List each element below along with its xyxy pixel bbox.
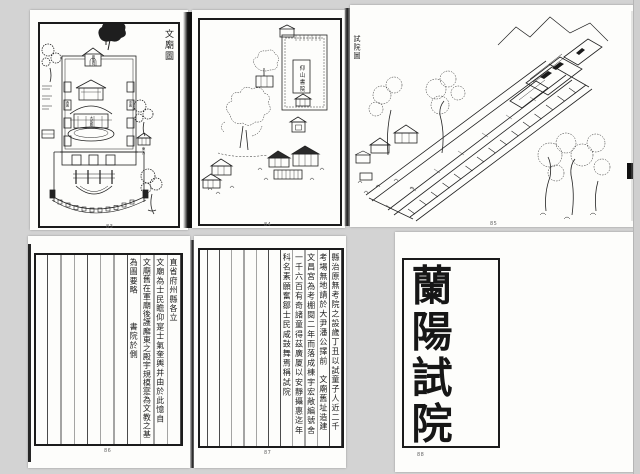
compound-wall-middle: [388, 75, 572, 215]
gate-hall: [62, 152, 136, 165]
left-tree: [42, 44, 54, 56]
main-hall-roof: [70, 106, 112, 114]
outer-wall: [62, 56, 136, 152]
text-column: 考場無地請於大尹潘公擇前 文廟舊址造建: [317, 253, 329, 443]
right-tree-trunk: [546, 157, 551, 211]
page-record-wenmiao-text: 直省府州縣各立 文廟為士民瞻仰寔士氣奎輿并由於此憶自 文廟舊在軍廟後護廨東之殿宇…: [28, 236, 190, 468]
page-confucian-temple-map: 崇聖祠 大成殿 西廡 東廡 東方 文廟圖 83: [30, 10, 188, 230]
west-wing-label: 西廡: [66, 101, 70, 108]
ruled-text-frame: 縣治原無考院之設歲丁丑以試童子人近二千 考場無地請於大尹潘公擇前 文廟舊址造建 …: [198, 248, 344, 448]
ruled-text-frame: 直省府州縣各立 文廟為士民瞻仰寔士氣奎輿并由於此憶自 文廟舊在軍廟後護廨東之殿宇…: [34, 253, 183, 446]
text-column: 為圖要略 書院於側: [127, 258, 140, 441]
page-seal-title: 蘭 陽 試 院 88: [395, 232, 640, 472]
page-number: 84: [264, 222, 271, 228]
page-number: 85: [490, 221, 497, 227]
marginal-label-block: [42, 86, 52, 109]
page-number: 88: [417, 452, 424, 458]
page-record-shiyuan-text: 縣治原無考院之設歲丁丑以試童子人近二千 考場無地請於大尹潘公擇前 文廟舊址造建 …: [194, 236, 346, 468]
text-columns: 縣治原無考院之設歲丁丑以試童子人近二千 考場無地請於大尹潘公擇前 文廟舊址造建 …: [280, 253, 341, 443]
potted-tree: [253, 50, 278, 71]
seal-character: 蘭: [407, 263, 457, 310]
seal-character: 試: [407, 355, 457, 402]
grove-foliage: [226, 87, 270, 125]
inner-hall-roof: [76, 80, 106, 88]
village-house: [268, 151, 290, 158]
east-wing-label: 東廡: [129, 100, 133, 108]
shrine-label: 崇聖祠: [91, 54, 95, 66]
page-title-shiyuan: 試院圖: [352, 35, 362, 61]
academy-frame: 仰山書院: [198, 18, 342, 226]
inner-hall: [295, 94, 311, 99]
academy-illustration: 仰山書院: [200, 20, 340, 224]
page-number: 83: [106, 224, 113, 230]
text-column: 文廟舊在軍廟後護廨東之殿宇規模寔為文教之基: [140, 258, 153, 441]
pavilion: [290, 117, 306, 122]
crenellated-screen-wall: [58, 200, 134, 212]
seal-script-column: 蘭 陽 試 院: [407, 263, 457, 447]
scan-right-margin: [633, 0, 640, 474]
village-house: [211, 159, 232, 166]
text-column: 縣治原無考院之設歲丁丑以試童子人近二千: [329, 253, 341, 443]
seal-title-frame: 蘭 陽 試 院: [402, 258, 500, 448]
seal-character: 院: [407, 401, 457, 448]
main-hall-label: 大成殿: [89, 115, 93, 127]
cell-rows: [386, 88, 576, 214]
page-number: 86: [104, 448, 111, 454]
corner-tree: [141, 169, 155, 183]
examination-hall-illustration: [350, 5, 640, 227]
academy-name-label: 仰山書院: [299, 64, 306, 93]
text-column: 文昌宮為考棚閱二年而落成棟宇宏敞編號舍: [304, 253, 316, 443]
text-columns: 直省府州縣各立 文廟為士民瞻仰寔士氣奎輿并由於此憶自 文廟舊在軍廟後護廨東之殿宇…: [127, 258, 180, 441]
temple-map-illustration: 崇聖祠 大成殿 西廡 東廡 東方: [40, 24, 178, 226]
text-column: 直省府州縣各立: [167, 258, 180, 441]
text-column: 一千六百有奇諸童得茲廣厦以安靜攝惠迄年: [292, 253, 304, 443]
page-academy-view: 仰山書院 84: [192, 10, 345, 228]
temple-map-frame: 崇聖祠 大成殿 西廡 東廡 東方 文廟圖: [38, 22, 180, 228]
farm-house: [394, 125, 418, 133]
terrace: [68, 127, 114, 141]
east-note-label: 東方: [141, 146, 146, 155]
seal-character: 陽: [407, 309, 457, 356]
gazetteer-scan-spread: { "palette": { "background": "#d3d3d3", …: [0, 0, 640, 474]
top-tree: [98, 24, 126, 42]
page-title-wenmiao: 文廟圖: [162, 29, 175, 62]
lingxing-gate: [76, 170, 112, 184]
grass-tufts: [208, 168, 324, 194]
rear-hall: [564, 39, 602, 65]
page-fold-edge: [28, 244, 31, 462]
text-column: 文廟為士民瞻仰寔士氣奎輿并由於此憶自: [153, 258, 166, 441]
text-column: 科名素願奮鄒士民咸鼓舞焉稱試院: [280, 253, 292, 443]
page-number: 87: [264, 450, 271, 456]
page-examination-hall-view: 試院圖 85: [350, 5, 640, 227]
left-tree-trunk: [440, 101, 444, 153]
